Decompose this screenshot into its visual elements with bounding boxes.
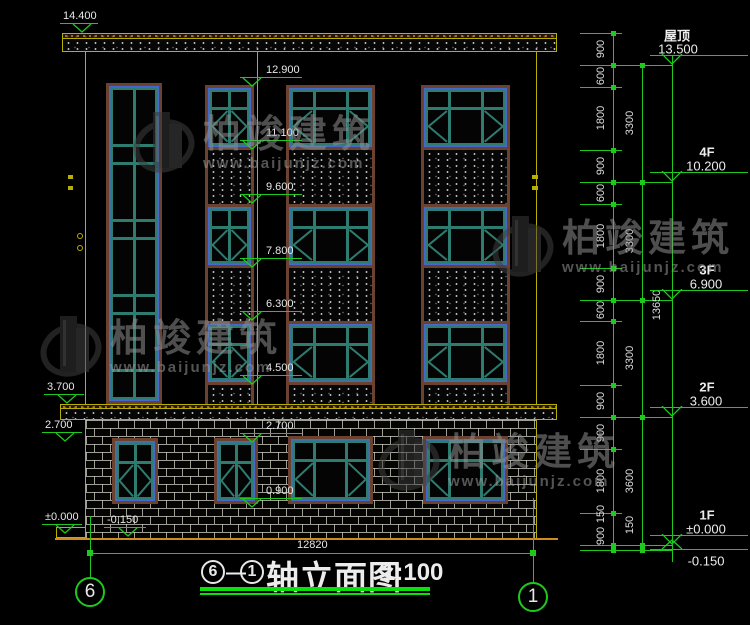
dim-chain-line-1 — [613, 33, 614, 550]
casement-swing-icon — [484, 110, 504, 143]
casement-swing-icon — [349, 346, 369, 378]
casement-swing-icon — [231, 229, 247, 261]
elevation-triangle-icon — [242, 312, 262, 321]
window-panes — [428, 211, 503, 261]
casement-swing-icon — [349, 110, 369, 143]
casement-swing-icon — [212, 110, 228, 143]
window-pane — [349, 110, 369, 143]
window — [288, 436, 373, 504]
axis-bubble-1: 1 — [518, 582, 548, 612]
window-panes — [113, 90, 155, 397]
casement-swing-icon — [483, 462, 501, 497]
window — [214, 438, 258, 504]
window-pane — [113, 372, 133, 397]
window-pane — [451, 443, 479, 459]
window-pane — [428, 229, 448, 261]
elevation-triangle-icon — [242, 141, 262, 150]
casement-swing-icon — [119, 464, 134, 497]
elevation-triangle-icon — [55, 433, 75, 442]
window-pane — [484, 346, 504, 378]
window-pane — [113, 147, 133, 162]
window-pane — [430, 443, 448, 459]
window-pane — [136, 315, 156, 369]
window-panes — [293, 92, 368, 143]
window-pane — [293, 92, 313, 107]
elevation-marker-12.900: 12.900 — [266, 64, 300, 76]
drawing-canvas: 9006001800900600180090060018009009001800… — [0, 0, 750, 625]
casement-swing-icon — [428, 229, 448, 261]
spandrel-panel — [286, 268, 375, 321]
casement-swing-icon — [293, 229, 313, 261]
bottom-dim-label: 12820 — [297, 539, 328, 551]
dim-chain-line-2 — [642, 65, 643, 550]
dim-label-150: 150 — [624, 516, 636, 534]
dim-tick-line — [580, 65, 672, 66]
window-pane — [119, 445, 134, 461]
spandrel-panel — [286, 150, 375, 204]
window-pane — [295, 443, 313, 459]
window-pane — [451, 92, 481, 107]
elevation-triangle-icon — [72, 24, 92, 33]
dim-label-600: 600 — [595, 301, 607, 319]
window-pane — [212, 229, 228, 261]
elevation-triangle-icon — [57, 395, 77, 404]
window-pane — [212, 328, 228, 343]
title-axis-circle-left: 6 — [201, 560, 225, 584]
floor-level-line — [672, 55, 673, 562]
elevation-triangle-icon — [242, 434, 262, 443]
casement-swing-icon — [231, 110, 247, 143]
window-panes — [293, 328, 368, 378]
elevation-marker-3.700: 3.700 — [47, 381, 75, 393]
window-pane — [349, 92, 369, 107]
window-pane — [136, 165, 156, 219]
elevation-marker-9.600: 9.600 — [266, 181, 294, 193]
window-pane — [231, 211, 247, 226]
drawing-scale: 1:100 — [382, 559, 443, 587]
spandrel-panel — [286, 385, 375, 404]
window-pane — [212, 92, 228, 107]
window-pane — [451, 211, 481, 226]
elevation-marker-2.700: 2.700 — [45, 419, 73, 431]
casement-swing-icon — [349, 229, 369, 261]
dim-label-900: 900 — [595, 424, 607, 442]
elevation-triangle-icon — [55, 525, 75, 534]
window-pane — [428, 346, 448, 378]
floor-name-2F: 2F — [699, 380, 714, 395]
window — [112, 438, 158, 504]
dim-label-1800: 1800 — [595, 224, 607, 248]
window-pane — [316, 328, 346, 343]
elevation-triangle-icon — [242, 195, 262, 204]
spandrel-panel — [421, 150, 510, 204]
floor-name-4F: 4F — [699, 145, 714, 160]
window-pane — [113, 297, 133, 312]
casement-swing-icon — [212, 229, 228, 261]
window-pane — [483, 462, 501, 497]
window-pane — [231, 346, 247, 378]
window-pane — [484, 211, 504, 226]
window-pane — [451, 346, 481, 378]
floor-name-1F: 1F — [699, 508, 714, 523]
window-pane — [428, 211, 448, 226]
floor-elev-label: -0.150 — [688, 554, 725, 569]
window-pane — [136, 240, 156, 294]
window-pane — [113, 222, 133, 237]
elevation-marker-0.900: 0.900 — [266, 485, 294, 497]
window-pane — [231, 328, 247, 343]
window — [423, 436, 508, 504]
floor-elevation-triangle-icon — [661, 539, 683, 550]
elevation-triangle-icon — [242, 259, 262, 268]
window-pane — [451, 462, 479, 497]
dim-label-600: 600 — [595, 67, 607, 85]
elevation-marker-2.700: 2.700 — [266, 420, 294, 432]
window-panes — [293, 211, 368, 261]
window-pane — [231, 229, 247, 261]
dim-tick-line — [580, 182, 672, 183]
casement-swing-icon — [212, 346, 228, 378]
elevation-marker--0.150: -0.150 — [107, 514, 138, 526]
casement-swing-icon — [484, 229, 504, 261]
casement-swing-icon — [137, 464, 152, 497]
elevation-marker-±0.000: ±0.000 — [45, 511, 79, 523]
window-pane — [348, 443, 366, 459]
window-panes — [212, 92, 247, 143]
window-pane — [293, 211, 313, 226]
window — [421, 204, 510, 268]
window-pane — [316, 110, 346, 143]
window-pane — [238, 464, 252, 497]
casement-swing-icon — [293, 346, 313, 378]
window-pane — [137, 464, 152, 497]
spandrel-panel — [421, 268, 510, 321]
window-pane — [221, 464, 235, 497]
dim-label-900: 900 — [595, 527, 607, 545]
elevation-triangle-icon — [242, 78, 262, 87]
window-pane — [430, 462, 448, 497]
window-pane — [484, 92, 504, 107]
dim-label-900: 900 — [595, 40, 607, 58]
floor-elevation-triangle-icon — [661, 54, 683, 65]
window-pane — [293, 346, 313, 378]
window-pane — [349, 211, 369, 226]
dim-label-1800: 1800 — [595, 469, 607, 493]
casement-swing-icon — [295, 462, 313, 497]
window-pane — [316, 462, 344, 497]
title-underline-thin — [200, 593, 430, 595]
casement-swing-icon — [238, 464, 252, 497]
window-pane — [484, 229, 504, 261]
window-pane — [349, 229, 369, 261]
window-panes — [119, 445, 151, 497]
window-pane — [136, 90, 156, 144]
window — [106, 83, 162, 404]
window-pane — [349, 346, 369, 378]
window-pane — [484, 110, 504, 143]
dim-tick-line — [580, 550, 672, 551]
window-pane — [428, 328, 448, 343]
elevation-triangle-icon — [118, 528, 138, 537]
window — [421, 85, 510, 150]
window-pane — [349, 328, 369, 343]
dim-tick-line — [580, 417, 672, 418]
dim-label-900: 900 — [595, 392, 607, 410]
window-pane — [316, 443, 344, 459]
window-pane — [137, 445, 152, 461]
casement-swing-icon — [484, 346, 504, 378]
window-pane — [136, 372, 156, 397]
elevation-marker-11.100: 11.100 — [266, 127, 299, 139]
casement-swing-icon — [428, 110, 448, 143]
floor-elevation-triangle-icon — [661, 406, 683, 417]
window-pane — [316, 229, 346, 261]
window-panes — [212, 328, 247, 378]
dim-label-1800: 1800 — [595, 106, 607, 130]
floor-elevation-triangle-icon — [661, 289, 683, 300]
elevation-triangle-icon — [242, 376, 262, 385]
window-pane — [231, 110, 247, 143]
dim-label-1800: 1800 — [595, 341, 607, 365]
spandrel-panel — [421, 385, 510, 404]
floor-elevation-triangle-icon — [661, 171, 683, 182]
window-pane — [483, 443, 501, 459]
elevation-marker-6.300: 6.300 — [266, 298, 294, 310]
window-pane — [212, 211, 228, 226]
axis-bubble-6: 6 — [75, 577, 105, 607]
window-pane — [119, 464, 134, 497]
casement-swing-icon — [231, 346, 247, 378]
window-pane — [316, 211, 346, 226]
casement-swing-icon — [430, 462, 448, 497]
window-panes — [212, 211, 247, 261]
axis-witness-left — [90, 516, 91, 577]
window-pane — [316, 346, 346, 378]
window-pane — [428, 92, 448, 107]
window-pane — [212, 110, 228, 143]
dim-label-3600: 3600 — [624, 469, 636, 493]
title-axis-circle-right: 1 — [240, 560, 264, 584]
window-pane — [348, 462, 366, 497]
casement-swing-icon — [348, 462, 366, 497]
window-pane — [316, 92, 346, 107]
dim-label-3300: 3300 — [624, 229, 636, 253]
elevation-triangle-icon — [242, 499, 262, 508]
casement-swing-icon — [221, 464, 235, 497]
casement-swing-icon — [428, 346, 448, 378]
elevation-marker-4.500: 4.500 — [266, 362, 294, 374]
dim-tick-line — [580, 545, 672, 546]
window-pane — [113, 240, 133, 294]
window — [421, 321, 510, 385]
window-pane — [113, 90, 133, 144]
dim-label-600: 600 — [595, 184, 607, 202]
window-pane — [113, 315, 133, 369]
annotation-layer: 9006001800900600180090060018009009001800… — [0, 0, 750, 625]
dim-label-900: 900 — [595, 157, 607, 175]
axis-witness-right — [533, 498, 534, 582]
window-pane — [238, 445, 252, 461]
window-panes — [295, 443, 366, 497]
window-pane — [451, 110, 481, 143]
dim-label-3300: 3300 — [624, 111, 636, 135]
window-pane — [136, 222, 156, 237]
window-pane — [221, 445, 235, 461]
window-pane — [451, 229, 481, 261]
window-pane — [451, 328, 481, 343]
window-panes — [221, 445, 251, 497]
window-panes — [428, 328, 503, 378]
window-pane — [136, 147, 156, 162]
dim-label-150: 150 — [595, 505, 607, 523]
window-pane — [136, 297, 156, 312]
dim-label-900: 900 — [595, 275, 607, 293]
window-panes — [430, 443, 501, 497]
title-underline-thick — [200, 587, 430, 591]
window-pane — [113, 165, 133, 219]
window-panes — [428, 92, 503, 143]
dim-label-3300: 3300 — [624, 346, 636, 370]
floor-name-3F: 3F — [699, 263, 714, 278]
window-pane — [231, 92, 247, 107]
window-pane — [484, 328, 504, 343]
window-pane — [295, 462, 313, 497]
window-pane — [293, 229, 313, 261]
window-pane — [293, 328, 313, 343]
window-pane — [212, 346, 228, 378]
spandrel-panel — [205, 385, 254, 404]
elevation-marker-14.400: 14.400 — [63, 10, 97, 22]
window-pane — [428, 110, 448, 143]
elevation-marker-7.800: 7.800 — [266, 245, 294, 257]
